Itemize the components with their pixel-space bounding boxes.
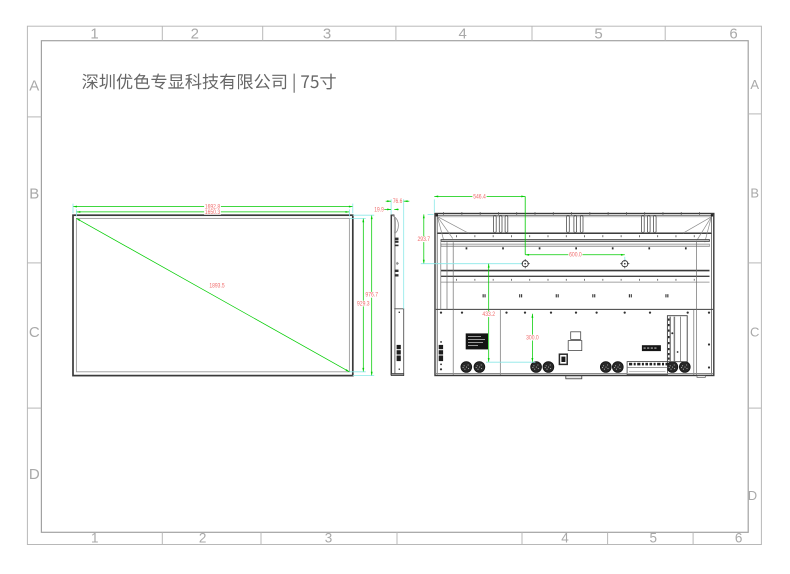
svg-text:293.7: 293.7	[418, 236, 431, 243]
svg-text:6: 6	[735, 531, 743, 546]
svg-text:C: C	[29, 324, 40, 341]
svg-text:546.4: 546.4	[473, 193, 486, 200]
svg-text:19.9: 19.9	[374, 206, 384, 213]
svg-text:A: A	[29, 77, 39, 94]
svg-text:600.0: 600.0	[569, 252, 582, 259]
svg-text:A: A	[750, 77, 759, 92]
svg-text:1: 1	[90, 26, 98, 43]
svg-text:433.2: 433.2	[482, 311, 495, 318]
svg-text:2: 2	[191, 26, 199, 43]
svg-text:300.0: 300.0	[526, 335, 539, 342]
svg-text:5: 5	[649, 531, 657, 546]
svg-text:D: D	[748, 488, 757, 503]
svg-text:76.6: 76.6	[393, 198, 403, 205]
svg-text:D: D	[29, 466, 40, 483]
svg-text:3: 3	[323, 26, 331, 43]
svg-text:929.3: 929.3	[357, 300, 370, 307]
svg-text:6: 6	[729, 26, 737, 43]
svg-text:2: 2	[199, 531, 207, 546]
svg-text:976.7: 976.7	[365, 292, 378, 299]
svg-text:1: 1	[91, 531, 99, 546]
svg-text:1650.3: 1650.3	[205, 209, 220, 216]
svg-text:4: 4	[561, 531, 569, 546]
svg-text:5: 5	[594, 26, 602, 43]
svg-text:B: B	[29, 185, 39, 202]
svg-text:4: 4	[459, 26, 467, 43]
svg-text:B: B	[750, 186, 759, 201]
svg-text:3: 3	[325, 531, 333, 546]
svg-text:C: C	[750, 324, 759, 339]
svg-text:1893.5: 1893.5	[209, 283, 224, 290]
